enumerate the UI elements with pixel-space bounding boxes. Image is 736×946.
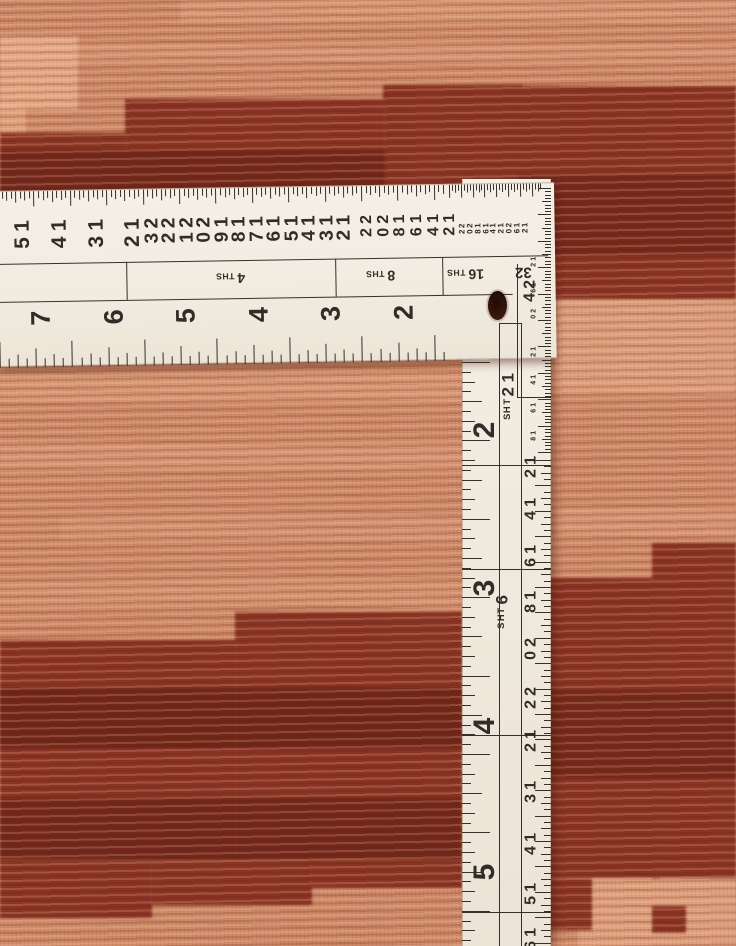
tick-mark [511,184,512,190]
tick-mark [193,189,194,196]
salmon-patch [0,798,462,860]
tick-mark [199,352,200,365]
tick-mark [133,190,134,199]
salmon-patch [0,372,462,402]
ruler-number: 18 [393,212,409,238]
tick-mark [407,353,408,362]
tick-mark [124,190,125,201]
tick-mark [529,184,530,190]
tick-mark [271,351,272,364]
tick-mark [97,190,98,199]
tick-mark [420,185,421,192]
tick-mark [490,184,491,192]
tick-mark [208,356,209,365]
tick-mark [370,186,371,195]
tick-mark [338,187,339,194]
tick-mark [181,346,182,365]
tick-mark [63,358,64,367]
salmon-patch [180,0,736,22]
tick-mark [320,187,321,194]
tick-mark [388,186,389,195]
tick-mark [261,188,262,197]
tick-mark [343,187,344,198]
tick-mark [206,189,207,198]
tick-mark [220,188,221,195]
graduation-label: 32 [483,263,563,281]
salmon-patch [0,44,736,62]
tick-mark [81,358,82,367]
tick-mark [243,188,244,197]
tick-mark [262,355,263,364]
tick-mark [253,345,254,364]
ruler-number: 22 [360,213,376,239]
tick-mark [275,188,276,195]
salmon-patch [0,580,462,606]
tick-mark [170,189,171,198]
tick-mark [438,185,439,192]
tick-mark [464,185,465,191]
ruler-number: 14 [49,217,71,251]
tick-mark [33,191,34,206]
tick-mark [47,191,48,198]
tick-mark [224,188,225,197]
tick-mark [27,358,28,367]
tick-mark [270,188,271,199]
tick-mark [172,356,173,365]
inch-number: 3 [318,303,345,325]
tick-mark [147,190,148,197]
tick-mark [247,188,248,195]
tick-mark [306,187,307,198]
tick-mark [473,184,474,197]
tick-mark [61,191,62,200]
tick-mark [353,353,354,362]
tick-mark [362,336,363,362]
tick-mark [65,191,66,198]
scale-divider-line [335,259,337,297]
tick-mark [334,187,335,196]
tick-mark [398,343,399,362]
tick-mark [93,190,94,197]
tick-mark [197,189,198,200]
tick-mark [523,184,524,190]
maroon-block [0,860,152,918]
tick-mark [505,184,506,190]
tick-mark [129,190,130,197]
tick-mark [144,340,145,366]
tick-mark [161,189,162,200]
tick-mark [6,192,7,201]
ruler-number: 14 [426,212,442,238]
tick-mark [537,183,538,191]
tick-mark [188,189,189,198]
tick-mark [371,353,372,362]
tick-mark [234,188,235,199]
tick-mark [15,192,16,203]
inch-number: 6 [100,306,127,328]
tick-mark [79,191,80,200]
tick-mark [88,191,89,202]
tick-mark [476,184,477,190]
tick-mark [496,184,497,197]
tick-mark [481,184,482,190]
tick-mark [380,349,381,362]
salmon-patch [60,516,462,540]
tick-mark [329,187,330,194]
tick-mark [72,341,73,367]
tick-mark [54,354,55,367]
tick-mark [0,342,1,368]
tick-mark [24,192,25,201]
tick-mark [154,356,155,365]
tick-mark [508,184,509,197]
tick-mark [478,184,479,192]
tick-mark [416,185,417,196]
tick-mark [20,192,21,199]
tick-mark [434,335,435,361]
tick-mark [111,190,112,197]
tick-mark [520,184,521,197]
tick-mark [265,188,266,195]
tick-mark [226,355,227,364]
tick-mark [425,185,426,194]
tick-mark [229,188,230,195]
tick-mark [311,187,312,194]
tick-mark [366,186,367,193]
maroon-block [548,878,592,930]
tick-mark [284,187,285,194]
tick-mark [434,185,435,200]
tick-mark [279,188,280,197]
tick-mark [289,337,290,363]
tick-mark [393,186,394,193]
inch-number: 2 [390,301,417,323]
tick-mark [165,189,166,196]
photo-of-ruler-on-rug: 1514131223222120191817161514131222201816… [0,0,736,946]
tick-mark [108,347,109,366]
tick-mark [389,353,390,362]
tick-mark [402,186,403,193]
tick-mark [99,357,100,366]
tick-mark [143,190,144,205]
tick-mark [352,186,353,195]
tick-mark [532,184,533,197]
tick-mark [444,352,445,361]
tick-mark [238,188,239,195]
tick-mark [120,190,121,197]
tick-mark [502,184,503,192]
tick-mark [344,350,345,363]
tick-mark [470,185,471,191]
salmon-patch [548,690,736,778]
ruler-number: 12 [334,212,353,243]
tick-mark [90,353,91,366]
tick-mark [308,350,309,363]
tick-mark [302,187,303,194]
tick-mark [117,357,118,366]
graduation-label: 4 THS [190,270,270,287]
inch-number: 7 [28,307,55,329]
tick-mark [356,186,357,193]
tick-mark [397,186,398,201]
tick-mark [211,189,212,196]
tick-mark [11,192,12,199]
tick-mark [317,354,318,363]
tick-mark [56,191,57,198]
ruler-number: 13 [86,216,108,250]
tick-mark [138,190,139,197]
tick-mark [152,190,153,199]
tick-mark [467,185,468,193]
tick-mark [293,187,294,194]
tick-mark [411,185,412,192]
tick-mark [126,353,127,366]
tick-mark [452,185,453,191]
tick-mark [493,184,494,190]
tick-mark [425,352,426,361]
tick-mark [429,185,430,192]
salmon-patch [552,296,736,394]
tick-mark [217,339,218,365]
tick-mark [184,189,185,196]
tick-mark [526,184,527,192]
tick-mark [288,187,289,202]
tick-mark [325,187,326,202]
maroon-block [150,860,312,905]
tick-mark [297,187,298,196]
tick-mark [534,183,535,189]
tick-mark [190,356,191,365]
tick-mark [487,184,488,190]
tick-mark [29,191,30,198]
ruler-number: 15 [13,217,35,251]
inch-number: 4 [245,304,272,326]
maroon-block [310,860,462,888]
tick-mark [106,190,107,205]
tick-mark [9,359,10,368]
tick-mark [45,358,46,367]
tick-mark [163,352,164,365]
tick-mark [215,189,216,204]
tick-mark [156,189,157,196]
tick-mark [83,191,84,198]
tick-mark [299,354,300,363]
tick-mark [102,190,103,197]
tick-mark [115,190,116,199]
tick-mark [540,183,541,189]
ruler-horizontal-arm: 1514131223222120191817161514131222201816… [0,182,557,367]
tick-mark [280,355,281,364]
tick-mark [256,188,257,195]
tick-mark [74,191,75,198]
tick-mark [514,184,515,192]
tick-mark [2,192,3,199]
tick-mark [252,188,253,203]
tick-mark [461,185,462,198]
salmon-patch [556,508,736,536]
tick-mark [43,191,44,200]
tick-mark [449,185,450,198]
tick-mark [315,187,316,196]
tick-mark [235,351,236,364]
inch-number: 5 [173,305,200,327]
tick-mark [443,185,444,194]
tick-mark [361,186,362,201]
tick-mark [52,191,53,202]
tick-mark [384,186,385,193]
maroon-block [652,906,686,933]
tick-mark [335,354,336,363]
tick-mark [379,186,380,197]
salmon-patch [0,444,462,470]
tick-mark [136,357,137,366]
tick-mark [484,184,485,197]
tick-mark [455,185,456,193]
tick-mark [347,186,348,193]
tick-mark [36,348,37,367]
tick-mark [174,189,175,196]
tick-mark [244,355,245,364]
tick-mark [326,344,327,363]
tick-mark [375,186,376,193]
scale-divider-line [126,262,128,300]
salmon-patch [0,688,462,748]
tick-mark [406,186,407,195]
tick-mark [38,191,39,198]
tick-mark [499,184,500,190]
tick-mark [416,348,417,361]
tick-mark [202,189,203,196]
tick-mark [18,355,19,368]
ruler-number: 12 [521,222,529,235]
tick-mark [70,191,71,206]
tick-mark [458,185,459,191]
ruler-number: 16 [409,212,425,238]
graduation-label: 8 THS [340,267,420,284]
tick-mark [517,184,518,190]
tick-mark [179,189,180,204]
scale-divider-line [0,255,548,265]
